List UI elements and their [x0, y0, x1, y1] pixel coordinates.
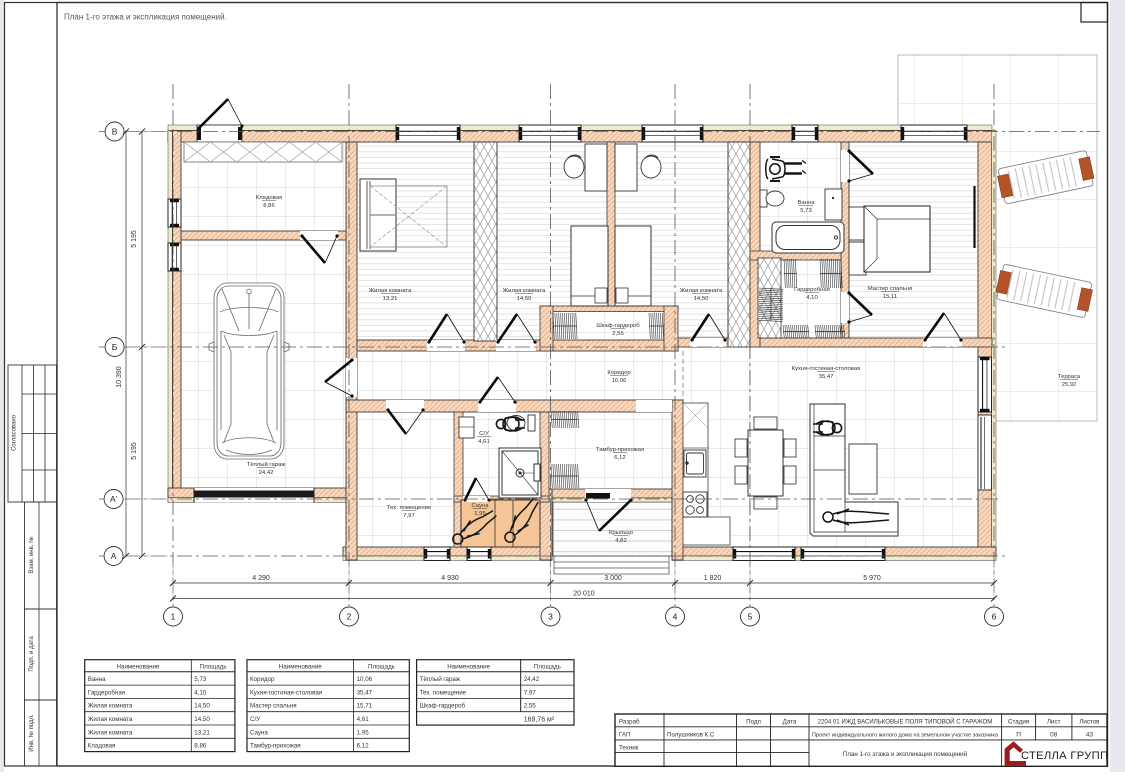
svg-text:Шкаф-гардероб: Шкаф-гардероб: [420, 703, 466, 710]
svg-text:08: 08: [1050, 732, 1058, 739]
svg-text:Гардеробная: Гардеробная: [794, 287, 830, 293]
svg-text:5 195: 5 195: [131, 230, 138, 248]
svg-text:Жилая комната: Жилая комната: [503, 288, 546, 294]
svg-text:1,95: 1,95: [357, 729, 370, 736]
svg-text:24,42: 24,42: [524, 676, 540, 683]
svg-text:25,92: 25,92: [1062, 382, 1077, 388]
svg-text:1,95: 1,95: [474, 511, 486, 517]
svg-text:10,06: 10,06: [357, 676, 373, 683]
svg-text:Площадь: Площадь: [200, 663, 227, 670]
svg-text:В: В: [112, 127, 118, 137]
svg-text:6,12: 6,12: [357, 743, 370, 750]
svg-text:20 010: 20 010: [573, 591, 595, 598]
svg-text:СТЕЛЛА ГРУПП: СТЕЛЛА ГРУПП: [1021, 750, 1108, 762]
svg-text:5: 5: [748, 612, 753, 622]
svg-text:4 290: 4 290: [252, 575, 270, 582]
svg-text:Кладовая: Кладовая: [88, 743, 116, 750]
svg-text:Коридор: Коридор: [607, 370, 631, 376]
svg-text:Жилая комната: Жилая комната: [369, 288, 412, 294]
svg-text:Наименование: Наименование: [117, 663, 160, 670]
svg-text:Тех. помещение: Тех. помещение: [420, 689, 467, 696]
svg-text:Тех. помещение: Тех. помещение: [387, 505, 432, 511]
svg-text:Мастер спальня: Мастер спальня: [250, 703, 297, 710]
svg-text:Коридор: Коридор: [250, 676, 275, 683]
svg-text:Кухня-гостиная-столовая: Кухня-гостиная-столовая: [792, 366, 861, 372]
svg-text:ГАП: ГАП: [619, 732, 630, 739]
svg-text:2,55: 2,55: [612, 331, 624, 337]
svg-text:Сауна: Сауна: [250, 729, 268, 736]
svg-text:24,42: 24,42: [259, 470, 274, 476]
svg-text:4 930: 4 930: [441, 575, 459, 582]
svg-text:Гардеробная: Гардеробная: [88, 689, 125, 696]
svg-text:План 1-го этажа и экспликация: План 1-го этажа и экспликация помещений: [843, 751, 968, 758]
svg-text:10 390: 10 390: [116, 366, 123, 388]
svg-text:6: 6: [992, 612, 997, 622]
svg-text:Крыльцо: Крыльцо: [609, 530, 634, 536]
svg-text:4,10: 4,10: [194, 689, 207, 696]
svg-text:35,47: 35,47: [357, 689, 373, 696]
svg-text:П: П: [1016, 732, 1021, 739]
svg-text:43: 43: [1086, 732, 1094, 739]
svg-text:Мастер спальня: Мастер спальня: [868, 286, 912, 292]
svg-text:Тамбур-прихожая: Тамбур-прихожая: [250, 743, 301, 750]
svg-text:Тёплый гараж: Тёплый гараж: [420, 676, 461, 683]
svg-text:3: 3: [548, 612, 553, 622]
svg-text:С/У: С/У: [250, 716, 260, 723]
svg-text:Жилая комната: Жилая комната: [88, 703, 133, 710]
svg-text:С/У: С/У: [479, 431, 489, 437]
svg-text:8,86: 8,86: [263, 203, 275, 209]
svg-text:4,10: 4,10: [806, 295, 818, 301]
svg-text:Жилая комната: Жилая комната: [680, 288, 723, 294]
svg-text:Подп: Подп: [746, 719, 761, 726]
svg-text:Сауна: Сауна: [471, 503, 489, 509]
svg-text:Согласовано: Согласовано: [12, 414, 18, 451]
svg-text:3 000: 3 000: [604, 575, 622, 582]
svg-text:10,06: 10,06: [612, 378, 627, 384]
svg-text:План 1-го этажа и экспликация: План 1-го этажа и экспликация помещений.: [64, 13, 227, 22]
svg-text:6,12: 6,12: [614, 455, 625, 461]
svg-text:1 820: 1 820: [704, 575, 722, 582]
svg-text:Взам. инв. №: Взам. инв. №: [28, 536, 35, 573]
svg-text:14,50: 14,50: [194, 716, 210, 723]
svg-text:15,11: 15,11: [883, 294, 897, 300]
svg-text:Ванна: Ванна: [88, 676, 106, 683]
svg-text:Инв. № подл.: Инв. № подл.: [28, 714, 35, 752]
svg-text:Б: Б: [112, 342, 118, 352]
svg-text:4: 4: [673, 612, 678, 622]
svg-text:Полушников К.С: Полушников К.С: [667, 732, 715, 739]
svg-text:Техник: Техник: [619, 745, 639, 752]
svg-text:Проект индивидуального жилого: Проект индивидуального жилого дома на зе…: [812, 733, 999, 739]
svg-text:Ванна: Ванна: [798, 200, 816, 206]
svg-text:8,86: 8,86: [194, 743, 207, 750]
svg-text:Листов: Листов: [1079, 719, 1100, 726]
svg-text:7,97: 7,97: [403, 513, 414, 519]
svg-text:Кладовая: Кладовая: [256, 195, 282, 201]
svg-text:5 970: 5 970: [863, 575, 881, 582]
svg-text:7,97: 7,97: [524, 689, 537, 696]
svg-text:Тамбур-прихожая: Тамбур-прихожая: [596, 447, 644, 453]
svg-text:Площадь: Площадь: [368, 663, 395, 670]
svg-text:4,61: 4,61: [478, 439, 489, 445]
svg-text:Жилая комната: Жилая комната: [88, 729, 133, 736]
svg-text:Стадия: Стадия: [1008, 719, 1029, 726]
svg-text:2: 2: [347, 612, 352, 622]
svg-text:Наименование: Наименование: [279, 663, 322, 670]
svg-text:2204 01 ИЖД ВАСИЛЬКОВЫЕ ПОЛЯ Т: 2204 01 ИЖД ВАСИЛЬКОВЫЕ ПОЛЯ ТИПОВОЙ С Г…: [818, 718, 993, 726]
svg-text:35,47: 35,47: [819, 374, 834, 380]
svg-text:Подп. и дата: Подп. и дата: [29, 636, 35, 672]
svg-text:1: 1: [171, 612, 176, 622]
svg-text:Разраб: Разраб: [619, 719, 640, 726]
svg-text:169,76 м²: 169,76 м²: [524, 717, 555, 724]
svg-text:13,21: 13,21: [194, 729, 210, 736]
svg-text:Тёплый гараж: Тёплый гараж: [247, 461, 286, 468]
svg-text:14,50: 14,50: [517, 296, 532, 302]
svg-text:А’: А’: [110, 494, 117, 504]
svg-text:14,50: 14,50: [694, 296, 709, 302]
svg-text:Площадь: Площадь: [534, 663, 561, 670]
svg-text:14,50: 14,50: [194, 703, 210, 710]
svg-text:4,82: 4,82: [615, 538, 626, 544]
svg-text:15,71: 15,71: [357, 703, 373, 710]
svg-text:2,55: 2,55: [524, 703, 537, 710]
svg-text:5,73: 5,73: [194, 676, 207, 683]
svg-text:Терраса: Терраса: [1058, 374, 1081, 380]
svg-text:Лист: Лист: [1047, 719, 1061, 726]
svg-text:Наименование: Наименование: [447, 663, 490, 670]
svg-text:Жилая комната: Жилая комната: [88, 716, 133, 723]
svg-text:Шкаф-гардероб: Шкаф-гардероб: [596, 323, 640, 329]
svg-text:А: А: [111, 551, 117, 561]
svg-text:Кухня-гостиная-столовая: Кухня-гостиная-столовая: [250, 689, 322, 696]
svg-text:Дата: Дата: [783, 719, 797, 726]
svg-text:4,61: 4,61: [357, 716, 370, 723]
svg-text:5 195: 5 195: [131, 442, 138, 460]
svg-text:13,21: 13,21: [383, 296, 398, 302]
svg-text:5,73: 5,73: [800, 208, 812, 214]
